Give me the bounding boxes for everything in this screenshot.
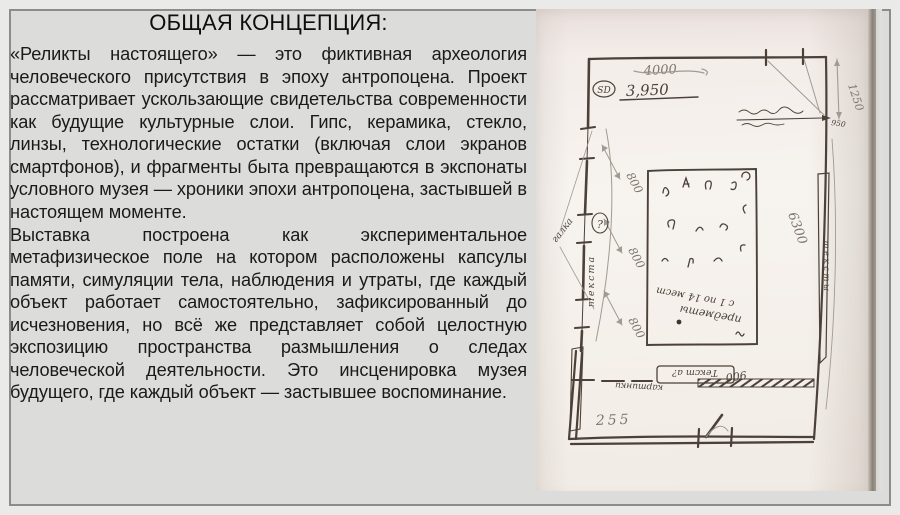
dim-800-arrows [602, 145, 622, 325]
wall-top [589, 57, 826, 59]
page-title: ОБЩАЯ КОНЦЕПЦИЯ: [10, 10, 527, 36]
wall-bottom [569, 437, 814, 445]
floor-plan-scan: 4000 SD 3,950 1250 950 6300 тексты [536, 9, 868, 491]
center-note-line2: с 1 по 14 мест [655, 284, 735, 309]
concept-text-column: ОБЩАЯ КОНЦЕПЦИЯ: «Реликты настоящего» — … [10, 2, 527, 404]
question-label: ? [597, 218, 603, 231]
sd-marker-label: SD [597, 86, 610, 96]
dim-800-label-3: 800 [625, 315, 648, 341]
note-underline [737, 118, 822, 120]
slide-canvas: ОБЩАЯ КОНЦЕПЦИЯ: «Реликты настоящего» — … [0, 0, 900, 515]
bottom-box-label: Текст а? [671, 367, 718, 378]
dim-6300-label: 6300 [784, 210, 809, 246]
illegible-note-topright [739, 107, 803, 127]
dim-1250-label: 1250 [845, 82, 866, 113]
concept-paragraph-2: Выставка построена как экспериментальное… [10, 224, 527, 405]
concept-paragraph-1: «Реликты настоящего» — это фиктивная арх… [10, 43, 527, 224]
dim-4000-label: 4000 [642, 62, 677, 79]
left-diagonal-label: галка [550, 216, 576, 245]
flipped-center-note: предметы с 1 по 14 мест [653, 284, 745, 326]
inner-wall-dashes [572, 380, 652, 381]
exhibit-dot [677, 320, 682, 325]
hatched-wall-strip [698, 379, 814, 387]
right-strip-label: тексты [821, 241, 831, 294]
dim-255-label: 255 [595, 412, 632, 429]
dim-800-label-1: 800 [623, 170, 646, 196]
dim-800-label-2: 800 [625, 245, 648, 271]
pencil-guides-topright [768, 59, 824, 115]
scan-page-edge-light [876, 9, 882, 491]
floor-plan-sketch: 4000 SD 3,950 1250 950 6300 тексты [536, 9, 868, 491]
left-guide-curve [596, 129, 612, 341]
scan-page-edge-shadow [868, 9, 876, 491]
left-vertical-label: текста [586, 255, 597, 307]
dim-3950-label: 3,950 [626, 80, 670, 100]
dim-950-label: 950 [831, 118, 847, 129]
kartinki-label: картинки [615, 380, 664, 393]
dim-1250-arrow [837, 59, 839, 119]
